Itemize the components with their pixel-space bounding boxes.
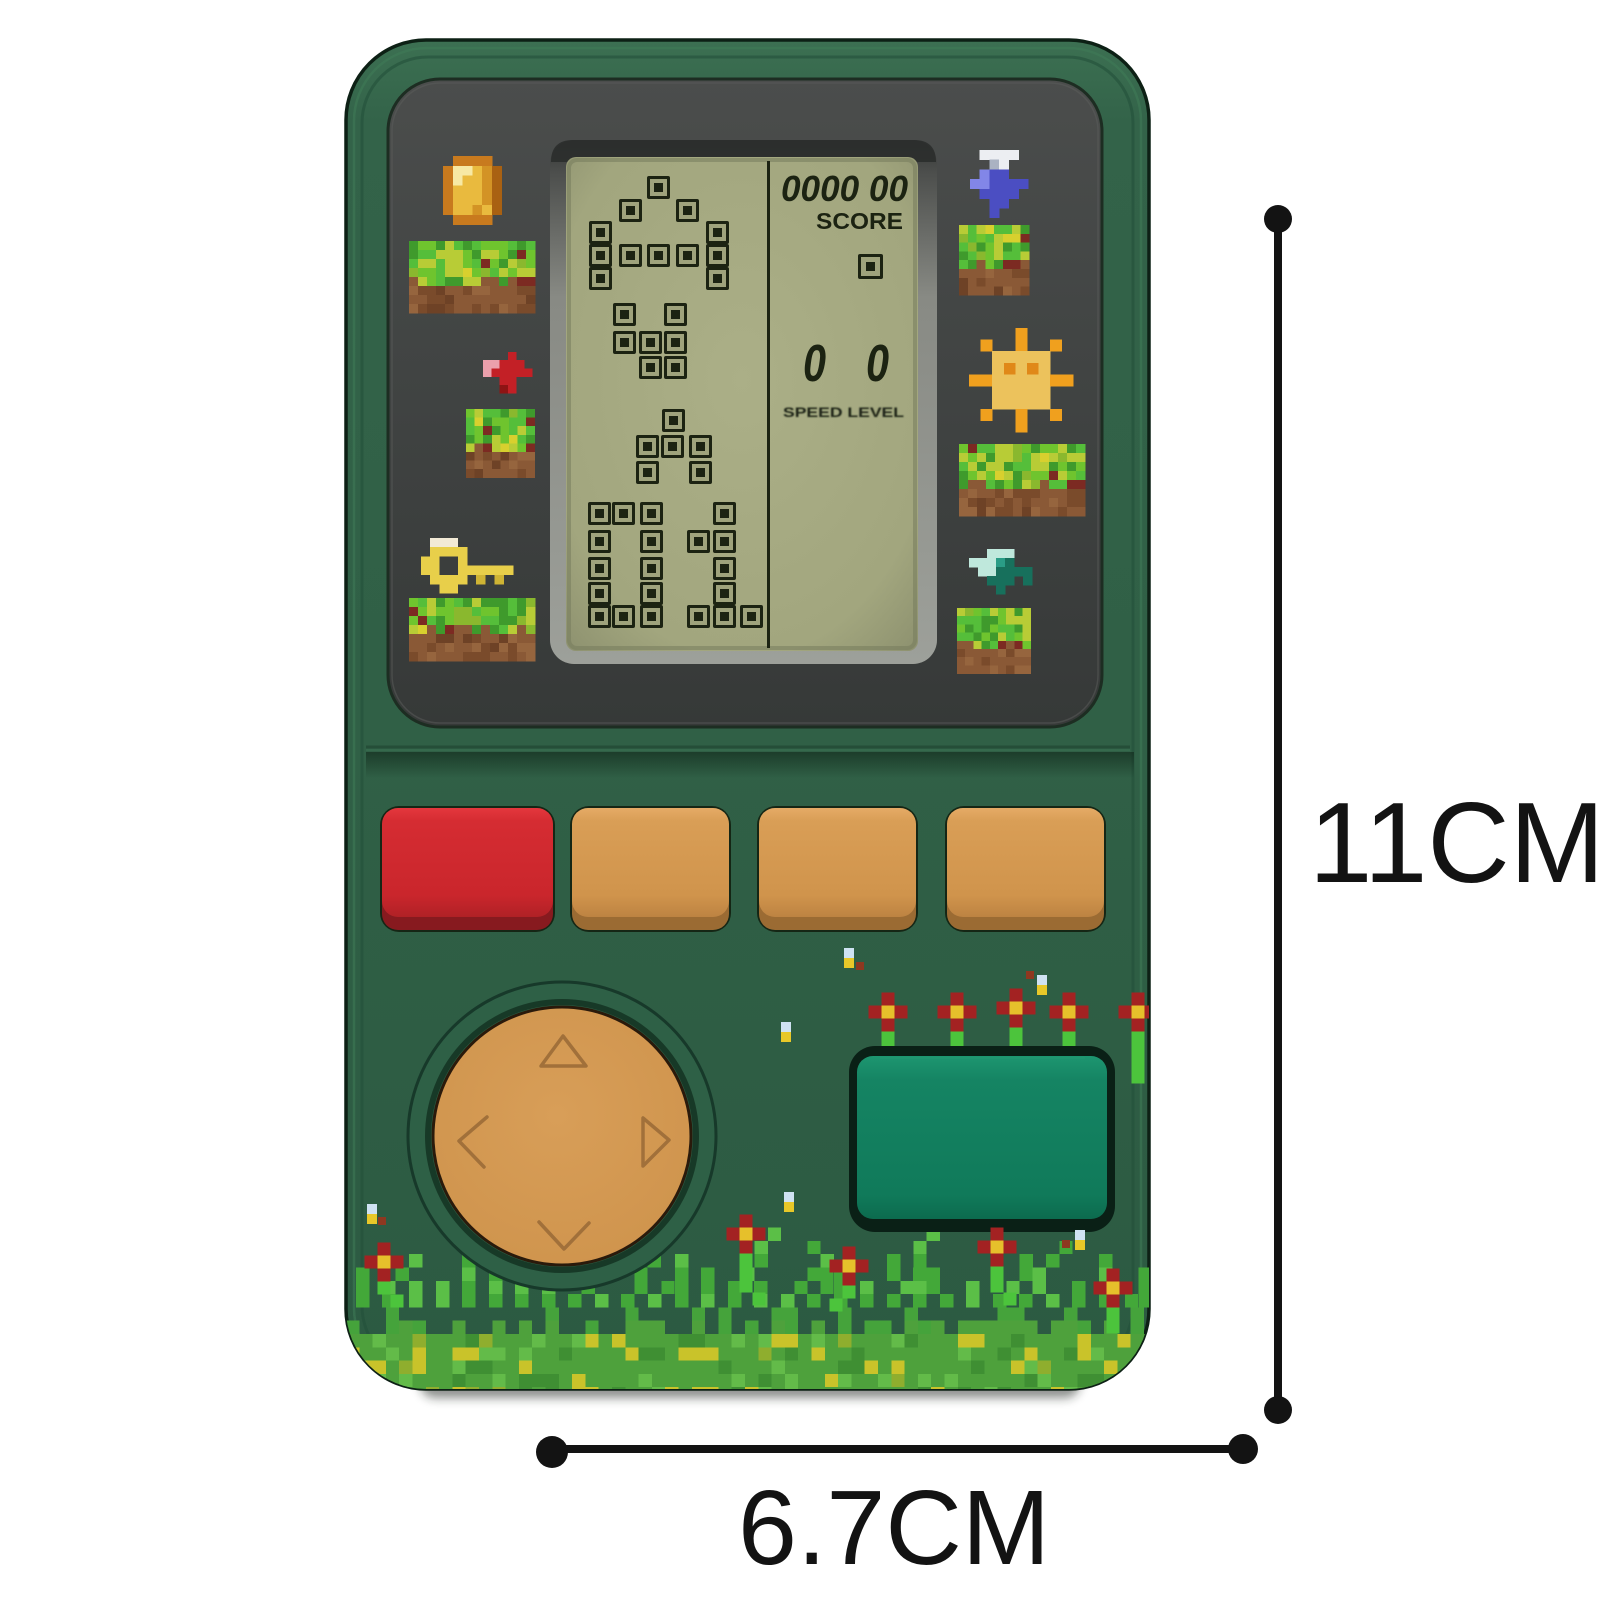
svg-text:11CM: 11CM (1309, 780, 1600, 907)
svg-text:SCORE: SCORE (816, 208, 903, 234)
svg-text:0000 00: 0000 00 (781, 168, 908, 209)
svg-text:0: 0 (803, 335, 826, 393)
svg-text:SPEED LEVEL: SPEED LEVEL (783, 405, 904, 420)
svg-text:6.7CM: 6.7CM (738, 1469, 1050, 1587)
svg-text:0: 0 (866, 335, 889, 393)
